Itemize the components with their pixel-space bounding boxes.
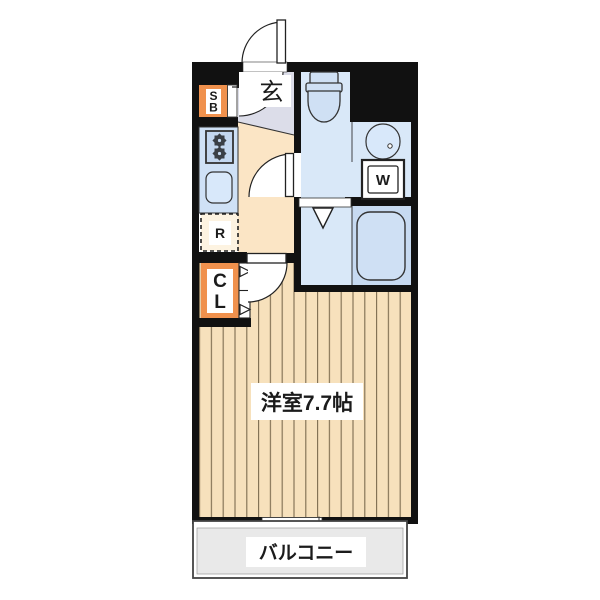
- wall-top-right: [287, 62, 418, 72]
- kitchen-sink: [206, 172, 232, 203]
- closet: CL: [201, 263, 250, 318]
- wall-bath-bottom: [294, 285, 418, 292]
- wall-shoebox-bottom: [196, 117, 238, 128]
- wall-main-door-right: [286, 253, 294, 263]
- toilet: [306, 72, 342, 122]
- main-door-leaf: [247, 254, 286, 264]
- wall-closet-bottom: [196, 318, 251, 327]
- wall-closet-top: [196, 252, 247, 263]
- floor-plan-page: R SB CL W: [0, 0, 600, 600]
- floor-plan: R SB CL W: [0, 0, 600, 600]
- toilet-tank-lid: [310, 72, 338, 84]
- basin-drain-icon: [388, 144, 392, 148]
- genkan-step-strip: [228, 85, 238, 117]
- washing-machine: W: [362, 160, 404, 199]
- stove-burner-icon: [212, 133, 226, 147]
- toilet-door-opening: [294, 153, 301, 197]
- kitchen-unit: [199, 127, 238, 213]
- wash-basin: [366, 124, 400, 159]
- balcony-label: バルコニー: [259, 542, 354, 564]
- closet-label: CL: [213, 271, 227, 313]
- shoe-box-label: SB: [209, 89, 218, 115]
- bath-door-strip: [299, 198, 351, 207]
- wall-right: [411, 62, 418, 524]
- main-room-label: 洋室7.7帖: [261, 391, 353, 415]
- balcony: バルコニー: [193, 521, 407, 578]
- refrigerator-label: R: [215, 225, 225, 241]
- toilet-door-leaf: [286, 154, 294, 197]
- stove-burner-icon: [212, 146, 226, 160]
- wall-top-left: [192, 62, 243, 72]
- wall-left: [192, 62, 199, 524]
- entrance-door-leaf: [277, 20, 286, 63]
- wall-pillar: [350, 72, 411, 122]
- genkan-label: 玄: [260, 79, 284, 106]
- refrigerator-space: R: [201, 214, 238, 251]
- washer-label: W: [376, 172, 391, 189]
- bathtub: [357, 212, 405, 280]
- basin-bowl: [366, 124, 400, 159]
